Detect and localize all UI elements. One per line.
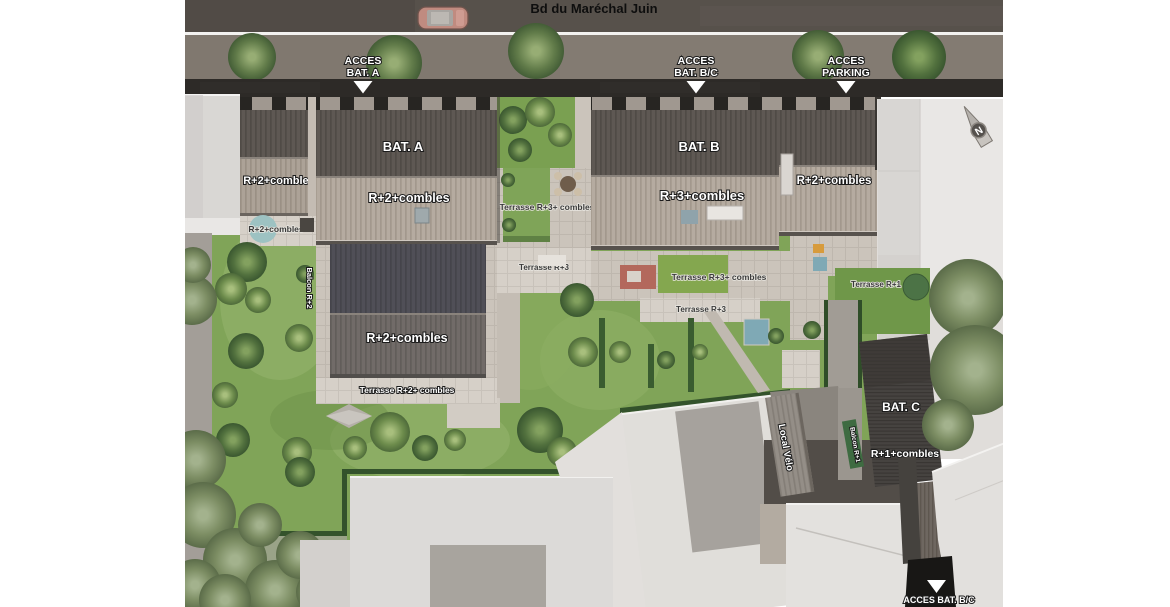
svg-text:BAT. A: BAT. A — [383, 139, 424, 154]
svg-text:Balcon R+2: Balcon R+2 — [305, 267, 314, 308]
svg-text:BAT. B/C: BAT. B/C — [674, 67, 718, 79]
svg-text:ACCES: ACCES — [345, 55, 382, 67]
svg-text:BAT. A: BAT. A — [347, 67, 380, 79]
svg-text:Bd du Maréchal Juin: Bd du Maréchal Juin — [530, 1, 657, 16]
svg-text:ACCES: ACCES — [678, 55, 715, 67]
svg-text:R+2+combles: R+2+combles — [248, 224, 304, 234]
svg-text:PARKING: PARKING — [822, 67, 870, 79]
svg-text:ACCES BAT. B/C: ACCES BAT. B/C — [903, 595, 975, 605]
svg-text:R+2+combles: R+2+combles — [368, 191, 449, 205]
svg-text:R+2+combles: R+2+combles — [797, 175, 872, 187]
svg-text:R+2+combles: R+2+combles — [243, 175, 315, 187]
svg-text:Terrasse R+2+ combles: Terrasse R+2+ combles — [360, 385, 455, 395]
svg-text:BAT. B: BAT. B — [679, 139, 720, 154]
svg-text:ACCES: ACCES — [828, 55, 865, 67]
svg-text:Terrasse R+3: Terrasse R+3 — [676, 305, 726, 314]
svg-text:R+3+combles: R+3+combles — [660, 188, 745, 203]
svg-text:Terrasse R+3+ combles: Terrasse R+3+ combles — [500, 202, 595, 212]
svg-text:BAT. C: BAT. C — [882, 400, 920, 414]
svg-text:R+2+combles: R+2+combles — [366, 331, 447, 345]
svg-text:Terrasse R+1: Terrasse R+1 — [851, 280, 901, 289]
svg-text:Terrasse R+3+ combles: Terrasse R+3+ combles — [672, 272, 767, 282]
